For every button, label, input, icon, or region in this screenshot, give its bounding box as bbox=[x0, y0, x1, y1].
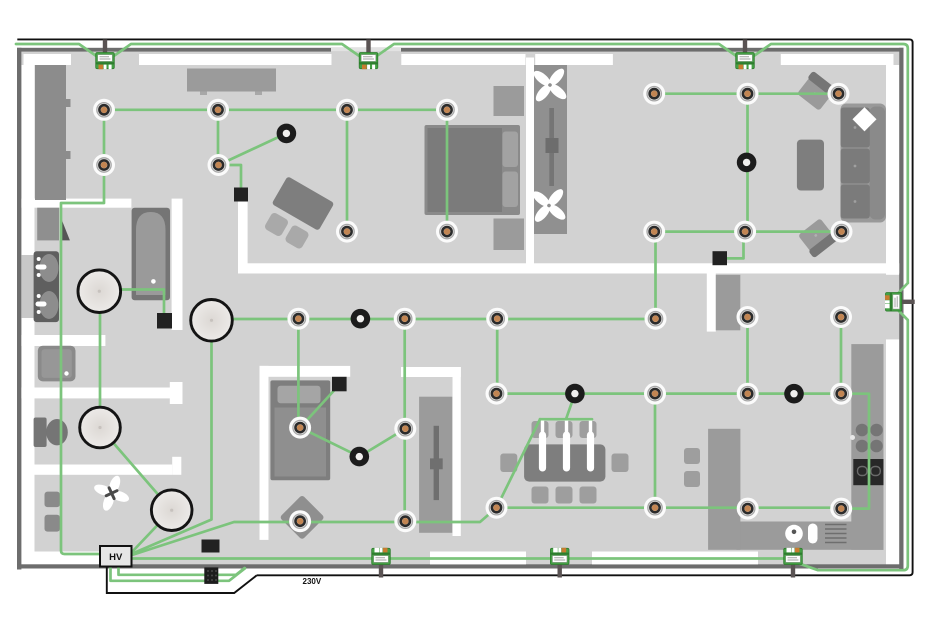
svg-text:230V: 230V bbox=[303, 577, 322, 586]
svg-text:HV: HV bbox=[109, 552, 123, 563]
